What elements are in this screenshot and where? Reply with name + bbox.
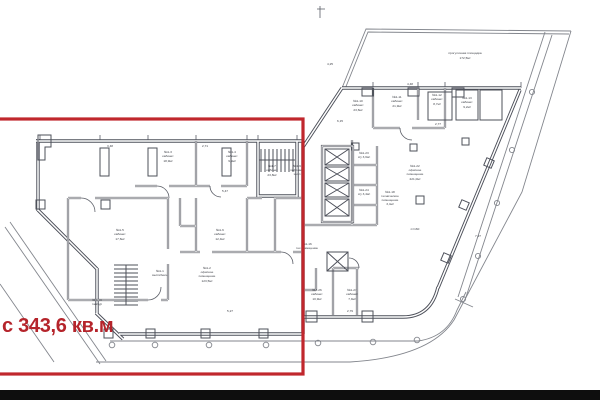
room-label: 23,6м² [353, 108, 362, 112]
room-label: 8,7м² [433, 102, 440, 106]
room-label: 9,2м² [463, 105, 470, 109]
elevator-core [322, 146, 353, 271]
room-label: кабинет [266, 168, 278, 172]
bottom-bar [0, 390, 600, 400]
room-label: тех.помещение [296, 246, 318, 250]
room-label: с/у 3,4м² [358, 192, 370, 196]
room-label: кабинет [162, 154, 174, 158]
terrace-label: прогулочная площадка [448, 51, 482, 55]
room-label: тамбур [92, 302, 102, 306]
room-label: кабинет [226, 154, 238, 158]
room-label: кабинет [391, 99, 403, 103]
dimension-label: 2,79 [347, 309, 353, 313]
dimension-label: 4,25 [327, 62, 333, 66]
dimension-label: 6,15 [337, 119, 343, 123]
plan-labels: №1-3кабинет18,9м²№1-4кабинет9,9м²№1-7каб… [92, 51, 482, 313]
room-label: кабинет [352, 103, 364, 107]
dimension-label: 5,27 [227, 309, 233, 313]
dimension-label: 7,27 [475, 234, 481, 238]
room-label: кабинет [311, 292, 323, 296]
room-label: 7,9м² [348, 297, 355, 301]
dimension-label: 2,71 [202, 144, 208, 148]
dimension-label: 5,47 [222, 189, 228, 193]
site-outline [0, 6, 571, 364]
room-label: 10,9м² [312, 297, 321, 301]
room-label: 123,5м² [202, 279, 213, 283]
room-label: п=160 [411, 227, 420, 231]
terrace-label: 172,5м² [460, 56, 471, 60]
room-label: 23,8м² [267, 173, 276, 177]
room-label: 21,9м² [392, 104, 401, 108]
dimension-label: 2,77 [435, 122, 441, 126]
room-label: 18,9м² [163, 159, 172, 163]
room-label: помещение [199, 274, 216, 278]
room-label: холл [294, 172, 301, 176]
room-label: кабинет [114, 232, 126, 236]
exterior-walls [36, 88, 521, 339]
dimension-label: 3,48 [107, 144, 113, 148]
room-label: кабинет [214, 232, 226, 236]
dimension-label: 4,48 [407, 82, 413, 86]
room-label: с/у 3,6м² [358, 155, 370, 159]
highlight-area-label: с 343,6 кв.м [2, 315, 113, 338]
room-label: кабинет [431, 97, 443, 101]
room-label: кабинет [461, 100, 473, 104]
room-label: 221,0м² [410, 177, 421, 181]
room-label: помещение [407, 172, 424, 176]
room-label: 17,6м² [115, 237, 124, 241]
floorplan-screenshot: №1-3кабинет18,9м²№1-4кабинет9,9м²№1-7каб… [0, 0, 600, 400]
room-label: 3,4м² [386, 202, 393, 206]
floor-plan-drawing: №1-3кабинет18,9м²№1-4кабинет9,9м²№1-7каб… [0, 0, 600, 400]
room-label: вестибюль [152, 273, 168, 277]
room-label: кабинет [346, 292, 358, 296]
room-label: 12,4м² [215, 237, 224, 241]
room-label: 9,9м² [228, 159, 235, 163]
